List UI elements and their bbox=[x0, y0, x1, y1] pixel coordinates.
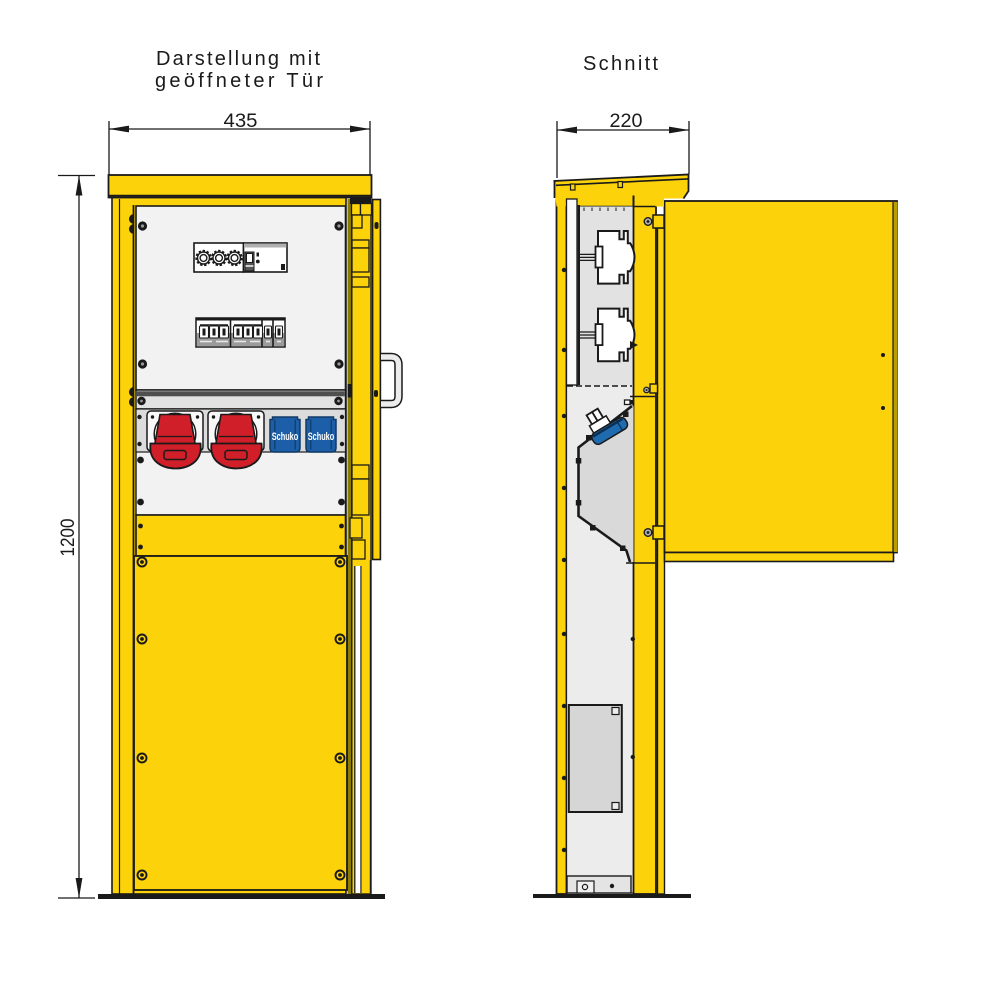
svg-text:435: 435 bbox=[224, 111, 258, 132]
svg-text:220: 220 bbox=[610, 111, 643, 132]
svg-text:Schuko: Schuko bbox=[308, 431, 335, 443]
svg-text:Darstellung mit: Darstellung mit bbox=[156, 48, 320, 70]
svg-text:Schuko: Schuko bbox=[272, 431, 299, 443]
svg-text:geöffneter Tür: geöffneter Tür bbox=[155, 70, 323, 92]
svg-text:1200: 1200 bbox=[58, 519, 79, 557]
svg-text:Schnitt: Schnitt bbox=[583, 53, 658, 75]
